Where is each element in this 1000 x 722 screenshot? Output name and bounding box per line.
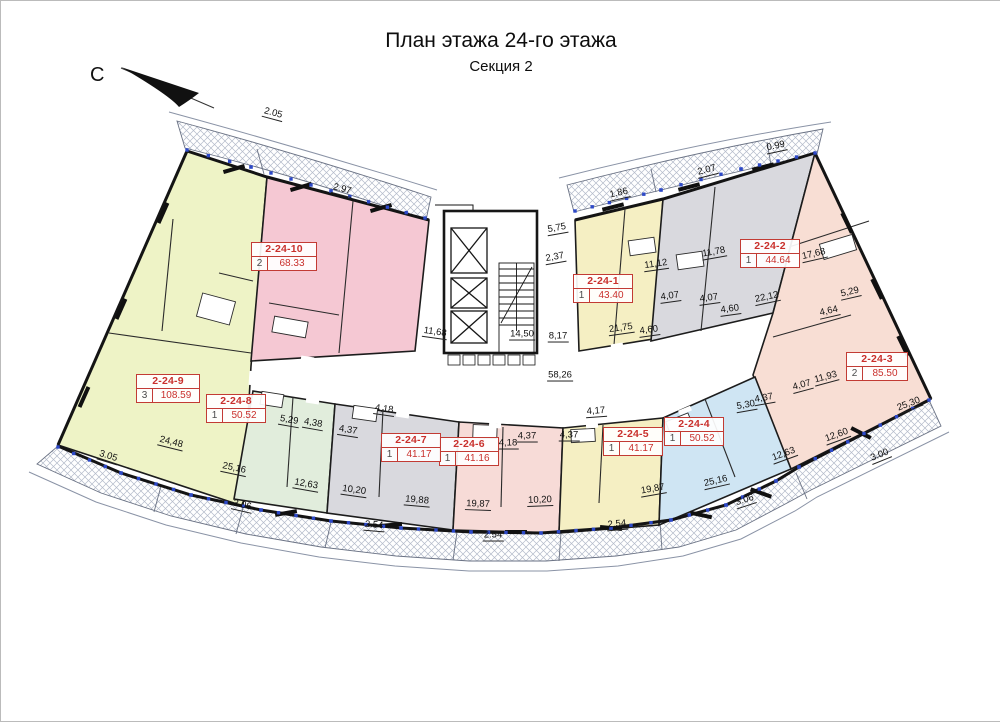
tick-mark	[573, 209, 576, 212]
apartment-id: 2-24-7	[382, 434, 440, 448]
tick-mark	[312, 517, 315, 520]
apartment-rooms-count: 1	[604, 442, 620, 455]
apartment-area-value: 41.17	[398, 448, 440, 461]
tick-mark	[879, 423, 882, 426]
tick-mark	[739, 167, 742, 170]
floor-plan-page: План этажа 24-го этажа Секция 2 С	[0, 0, 1000, 722]
tick-mark	[224, 501, 227, 504]
tick-mark	[679, 183, 682, 186]
tick-mark	[434, 528, 437, 531]
tick-mark	[189, 493, 192, 496]
apartment-area-2-24-7	[327, 404, 459, 530]
dimension-label: 58,26	[547, 371, 573, 382]
apartment-rooms-count: 2	[847, 367, 863, 380]
tick-mark	[259, 508, 262, 511]
apartment-label: 2-24-10268.33	[251, 242, 317, 271]
tick-mark	[347, 521, 350, 524]
apartment-id: 2-24-2	[741, 240, 799, 254]
dimension-label: 19,88	[404, 494, 431, 507]
tick-mark	[329, 519, 332, 522]
apartment-rooms-count: 1	[741, 254, 757, 267]
tick-mark	[289, 177, 292, 180]
tick-mark	[649, 521, 652, 524]
tick-mark	[927, 398, 930, 401]
tick-mark	[706, 508, 709, 511]
stair-elevator-core	[435, 205, 537, 365]
tick-mark	[895, 415, 898, 418]
apartment-area-value: 41.17	[620, 442, 662, 455]
tick-mark	[522, 531, 525, 534]
tick-mark	[591, 205, 594, 208]
tick-mark	[862, 432, 865, 435]
tick-mark	[830, 449, 833, 452]
apartment-rooms-count: 1	[574, 289, 590, 302]
apartment-area-value: 50.52	[223, 409, 265, 422]
tick-mark	[137, 477, 140, 480]
dimension-label: 2.54	[606, 519, 627, 532]
tick-mark	[423, 216, 426, 219]
tick-mark	[228, 160, 231, 163]
apartment-id: 2-24-3	[847, 353, 907, 367]
tick-mark	[56, 445, 59, 448]
tick-mark	[629, 524, 632, 527]
apartment-label: 2-24-8150.52	[206, 394, 266, 423]
dimension-label: 10,20	[527, 495, 553, 507]
tick-mark	[795, 155, 798, 158]
tick-mark	[758, 163, 761, 166]
vent-shafts	[448, 355, 535, 365]
tick-mark	[207, 497, 210, 500]
apartment-id: 2-24-6	[440, 438, 498, 452]
tick-mark	[405, 211, 408, 214]
tick-mark	[309, 183, 312, 186]
tick-mark	[776, 159, 779, 162]
apartment-area-value: 85.50	[863, 367, 907, 380]
tick-mark	[846, 440, 849, 443]
tick-mark	[119, 471, 122, 474]
apartment-id: 2-24-9	[137, 375, 199, 389]
dimension-label: 8,17	[548, 332, 569, 343]
apartment-id: 2-24-1	[574, 275, 632, 289]
tick-mark	[539, 531, 542, 534]
apartment-area-value: 43.40	[590, 289, 632, 302]
tick-mark	[724, 503, 727, 506]
apartment-label: 2-24-1143.40	[573, 274, 633, 303]
tick-mark	[104, 465, 107, 468]
tick-mark	[504, 531, 507, 534]
apartment-label: 2-24-4150.52	[664, 417, 724, 446]
apartment-rooms-count: 1	[382, 448, 398, 461]
tick-mark	[172, 488, 175, 491]
tick-mark	[269, 171, 272, 174]
apartment-area-value: 68.33	[268, 257, 316, 270]
tick-mark	[386, 206, 389, 209]
tick-mark	[669, 518, 672, 521]
apartment-area-value: 41.16	[456, 452, 498, 465]
dimension-label: 4,37	[517, 432, 538, 443]
tick-mark	[659, 188, 662, 191]
apartment-id: 2-24-8	[207, 395, 265, 409]
tick-mark	[294, 514, 297, 517]
tick-mark	[399, 526, 402, 529]
apartment-label: 2-24-93108.59	[136, 374, 200, 403]
apartment-area-value: 50.52	[681, 432, 723, 445]
apartment-rooms-count: 1	[207, 409, 223, 422]
apartment-label: 2-24-3285.50	[846, 352, 908, 381]
dimension-label: 4,37	[559, 431, 580, 442]
dimension-label: 14,50	[509, 330, 535, 341]
tick-mark	[688, 513, 691, 516]
tick-mark	[249, 165, 252, 168]
tick-mark	[642, 193, 645, 196]
tick-mark	[417, 527, 420, 530]
tick-mark	[758, 487, 761, 490]
tick-mark	[277, 511, 280, 514]
tick-mark	[797, 465, 800, 468]
dimension-label: 2.54	[363, 520, 384, 533]
north-arrow: С	[90, 64, 214, 108]
tick-mark	[574, 529, 577, 532]
tick-mark	[207, 154, 210, 157]
tick-mark	[469, 530, 472, 533]
tick-mark	[88, 458, 91, 461]
tick-mark	[592, 528, 595, 531]
dimension-label: 4,17	[585, 406, 606, 418]
apartment-area-value: 44.64	[757, 254, 799, 267]
tick-mark	[72, 452, 75, 455]
tick-mark	[367, 200, 370, 203]
tick-mark	[814, 457, 817, 460]
tick-mark	[719, 173, 722, 176]
tick-mark	[813, 151, 816, 154]
apartment-label: 2-24-2144.64	[740, 239, 800, 268]
tick-mark	[557, 530, 560, 533]
tick-mark	[452, 529, 455, 532]
apartment-id: 2-24-4	[665, 418, 723, 432]
apartment-rooms-count: 3	[137, 389, 153, 402]
apartment-id: 2-24-5	[604, 428, 662, 442]
apartment-area-value: 108.59	[153, 389, 199, 402]
apartment-rooms-count: 1	[440, 452, 456, 465]
tick-mark	[185, 148, 188, 151]
north-label: С	[90, 64, 104, 86]
dimension-label: 4,18	[498, 439, 519, 450]
dimension-label: 19,87	[465, 499, 491, 511]
apartment-rooms-count: 1	[665, 432, 681, 445]
dimension-label: 2.54	[483, 531, 504, 542]
apartment-id: 2-24-10	[252, 243, 316, 257]
tick-mark	[774, 479, 777, 482]
tick-mark	[154, 482, 157, 485]
apartment-label: 2-24-6141.16	[439, 437, 499, 466]
apartment-label: 2-24-5141.17	[603, 427, 663, 456]
apartment-rooms-count: 2	[252, 257, 268, 270]
apartment-label: 2-24-7141.17	[381, 433, 441, 462]
